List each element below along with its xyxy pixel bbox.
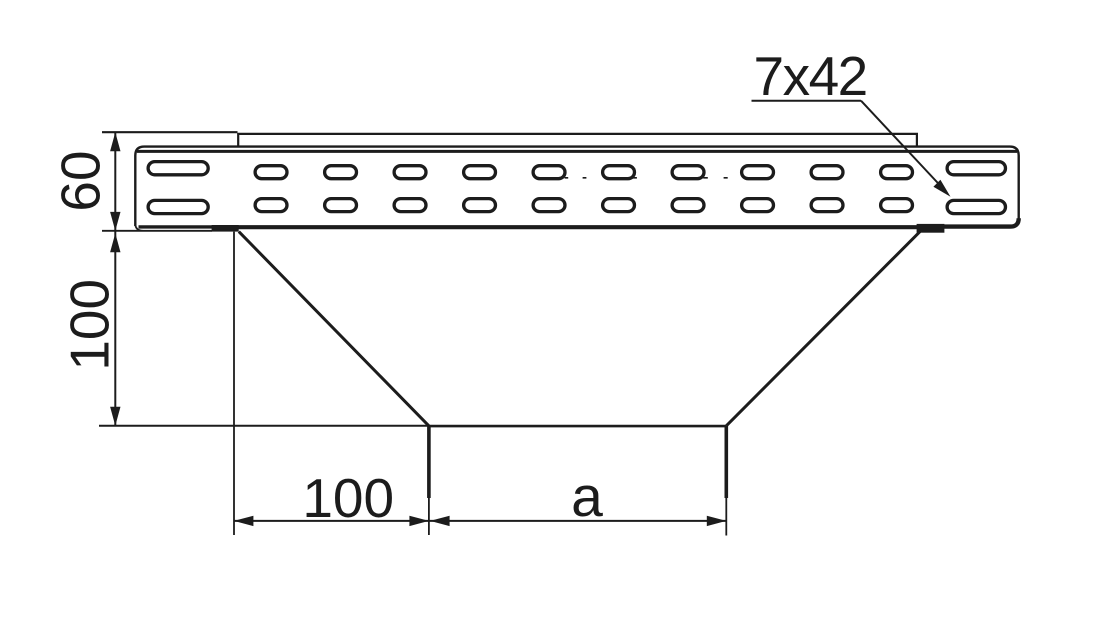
svg-text:60: 60 — [50, 150, 112, 211]
svg-text:100: 100 — [59, 279, 121, 371]
svg-text:7x42: 7x42 — [754, 45, 867, 107]
svg-text:100: 100 — [302, 467, 394, 529]
svg-text:a: a — [571, 465, 603, 529]
